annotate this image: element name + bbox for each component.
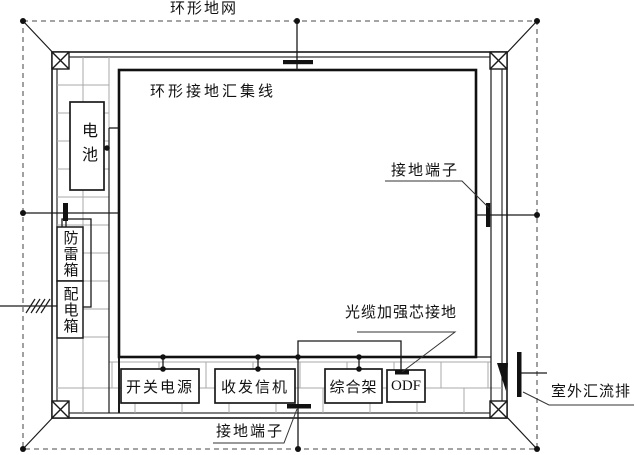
grounding-system-diagram: 环形地网 环形接地汇集线 接地端子 光缆加强芯接地 接地端子 室外汇流排 电池 … xyxy=(0,0,635,455)
leader-ground-terminal-right xyxy=(385,181,489,208)
ground-terminal-right-label: 接地端子 xyxy=(391,163,459,180)
terminal-bar-bottom xyxy=(287,404,311,409)
ground-terminal-bottom-label: 接地端子 xyxy=(216,424,284,441)
power-distribution-box-label: 配电箱 xyxy=(57,281,83,338)
transceiver-label: 收发信机 xyxy=(215,369,295,403)
terminal-bar-lightning-box xyxy=(63,203,68,221)
leader-fiber-ground xyxy=(357,332,455,372)
ring-ground-busbar-label: 环形接地汇集线 xyxy=(150,84,276,101)
wall-inner-line xyxy=(57,57,502,413)
fiber-strength-ground-label: 光缆加强芯接地 xyxy=(345,305,457,322)
lightning-protection-box-label: 防雷箱 xyxy=(57,227,83,281)
band-edge-lines xyxy=(109,69,491,413)
brick-band-lines xyxy=(57,57,502,413)
odf-label: ODF xyxy=(387,370,425,402)
switch-power-label: 开关电源 xyxy=(121,369,199,403)
outdoor-busbar-label: 室外汇流排 xyxy=(551,384,631,401)
diagram-canvas xyxy=(0,0,635,455)
battery-label: 电池 xyxy=(70,102,104,190)
integrated-rack-label: 综合架 xyxy=(325,369,382,403)
ring-ground-network-label: 环形地网 xyxy=(170,1,238,18)
outdoor-busbar-bar xyxy=(517,352,522,397)
terminal-bar-top xyxy=(283,60,313,64)
